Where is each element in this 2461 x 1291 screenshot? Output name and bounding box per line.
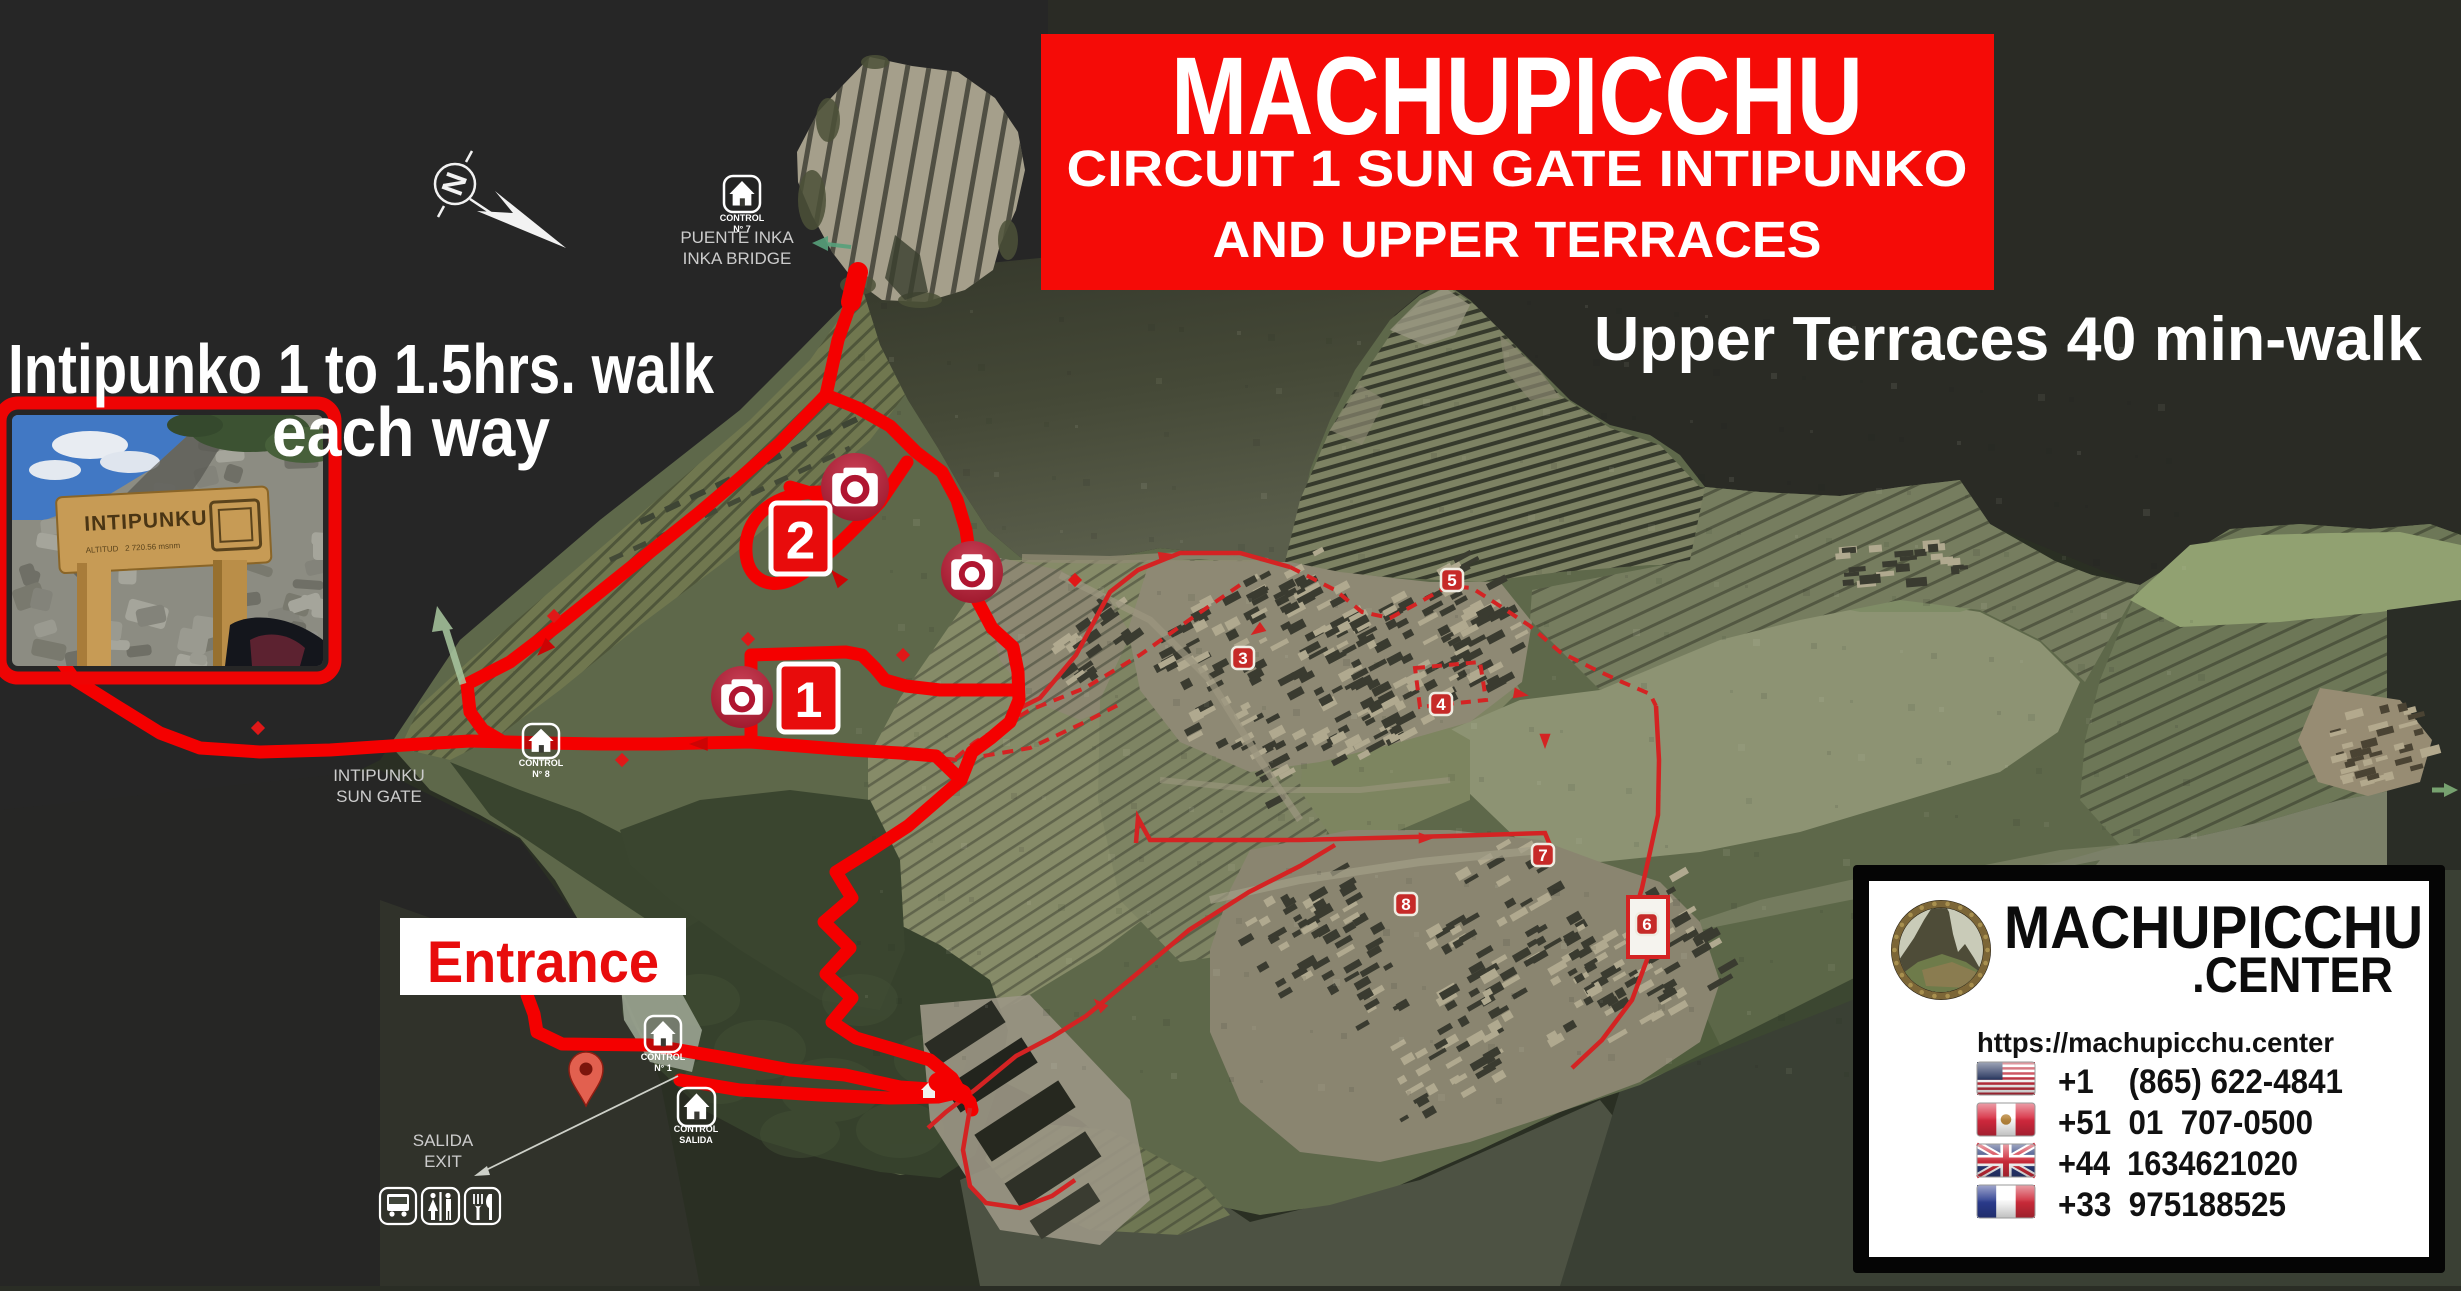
svg-text:+33 975188525: +33 975188525 <box>2058 1186 2286 1224</box>
svg-text:AND UPPER TERRACES: AND UPPER TERRACES <box>1213 211 1822 268</box>
svg-text:Upper Terraces 40 min-walk: Upper Terraces 40 min-walk <box>1594 305 2423 374</box>
svg-text:SALIDA: SALIDA <box>679 1135 713 1145</box>
svg-text:8: 8 <box>1401 895 1410 914</box>
svg-text:2: 2 <box>786 511 815 570</box>
svg-text:CONTROL: CONTROL <box>519 758 564 768</box>
svg-text:.CENTER: .CENTER <box>2192 947 2393 1003</box>
svg-text:Entrance: Entrance <box>427 930 659 995</box>
svg-text:CONTROL: CONTROL <box>641 1052 686 1062</box>
svg-text:N° 1: N° 1 <box>654 1063 672 1073</box>
svg-text:CONTROL: CONTROL <box>720 213 765 223</box>
svg-text:6: 6 <box>1642 915 1651 934</box>
svg-text:SALIDA: SALIDA <box>413 1131 474 1150</box>
svg-text:1: 1 <box>795 672 823 728</box>
svg-text:N° 8: N° 8 <box>532 769 550 779</box>
svg-text:5: 5 <box>1447 571 1456 590</box>
svg-text:+1 (865) 622-4841: +1 (865) 622-4841 <box>2058 1063 2343 1101</box>
svg-text:3: 3 <box>1238 649 1247 668</box>
svg-text:SUN GATE: SUN GATE <box>336 787 422 806</box>
svg-text:EXIT: EXIT <box>424 1152 462 1171</box>
svg-text:7: 7 <box>1538 846 1547 865</box>
svg-text:PUENTE INKA: PUENTE INKA <box>680 228 794 247</box>
svg-text:+44 1634621020: +44 1634621020 <box>2058 1145 2298 1183</box>
svg-text:each way: each way <box>272 393 550 471</box>
svg-text:4: 4 <box>1436 695 1446 714</box>
svg-text:https://machupicchu.center: https://machupicchu.center <box>1977 1027 2334 1058</box>
svg-text:CIRCUIT 1 SUN GATE INTIPUNKO: CIRCUIT 1 SUN GATE INTIPUNKO <box>1067 140 1968 197</box>
svg-text:CONTROL: CONTROL <box>674 1124 719 1134</box>
svg-text:INTIPUNKU: INTIPUNKU <box>333 766 425 785</box>
svg-text:+51 01 707-0500: +51 01 707-0500 <box>2058 1104 2313 1142</box>
svg-text:INKA BRIDGE: INKA BRIDGE <box>683 249 792 268</box>
